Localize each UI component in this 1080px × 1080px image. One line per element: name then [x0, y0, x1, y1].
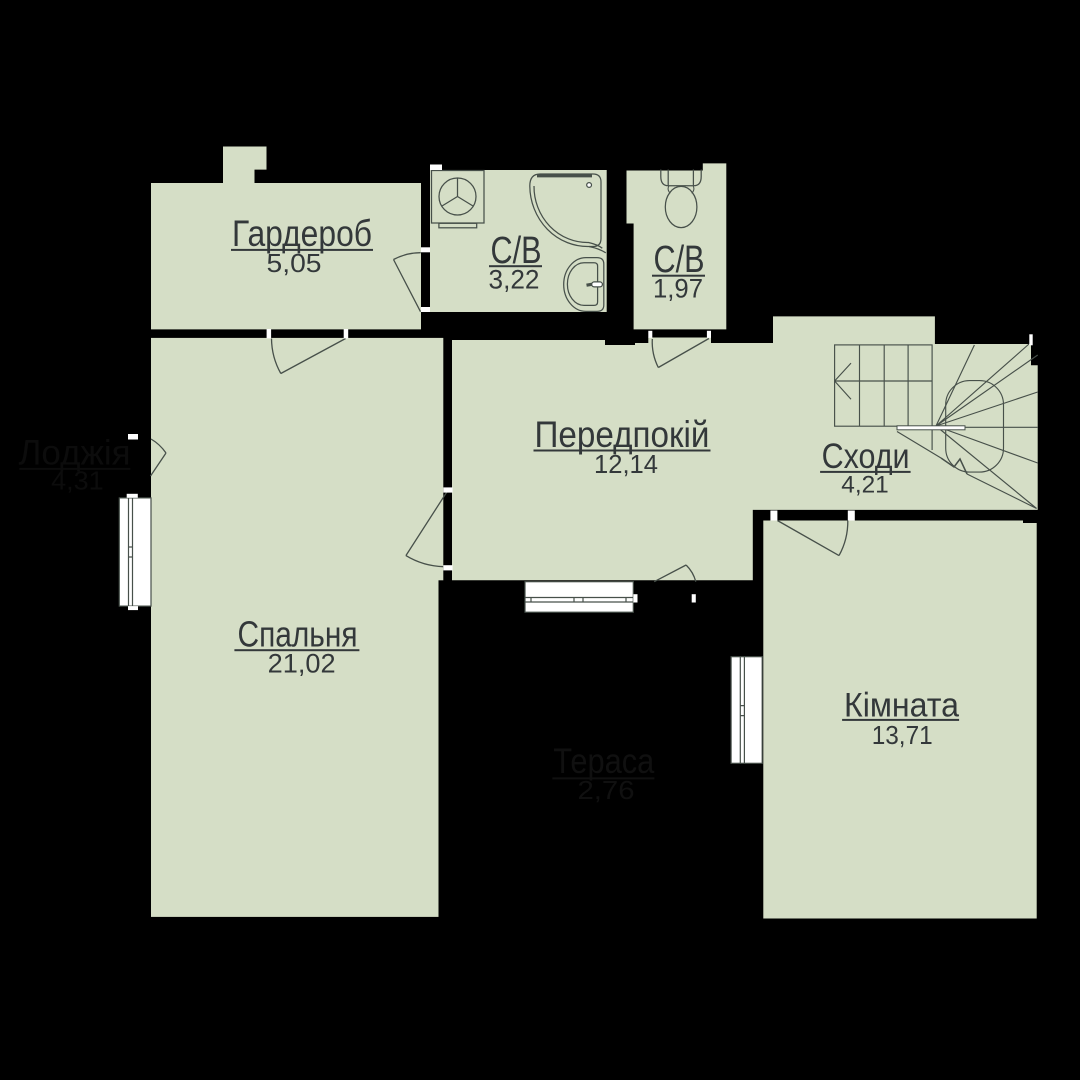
svg-text:Сходи: Сходи — [822, 437, 910, 476]
svg-text:4,31: 4,31 — [51, 466, 104, 496]
svg-text:13,71: 13,71 — [872, 722, 933, 750]
svg-text:Кімната: Кімната — [844, 686, 960, 724]
svg-text:12,14: 12,14 — [594, 449, 658, 479]
svg-text:1,97: 1,97 — [653, 273, 703, 303]
svg-text:3,22: 3,22 — [489, 264, 540, 294]
svg-text:2,76: 2,76 — [578, 775, 635, 805]
svg-text:5,05: 5,05 — [267, 248, 322, 278]
svg-text:21,02: 21,02 — [268, 649, 336, 679]
svg-text:4,21: 4,21 — [841, 472, 889, 499]
